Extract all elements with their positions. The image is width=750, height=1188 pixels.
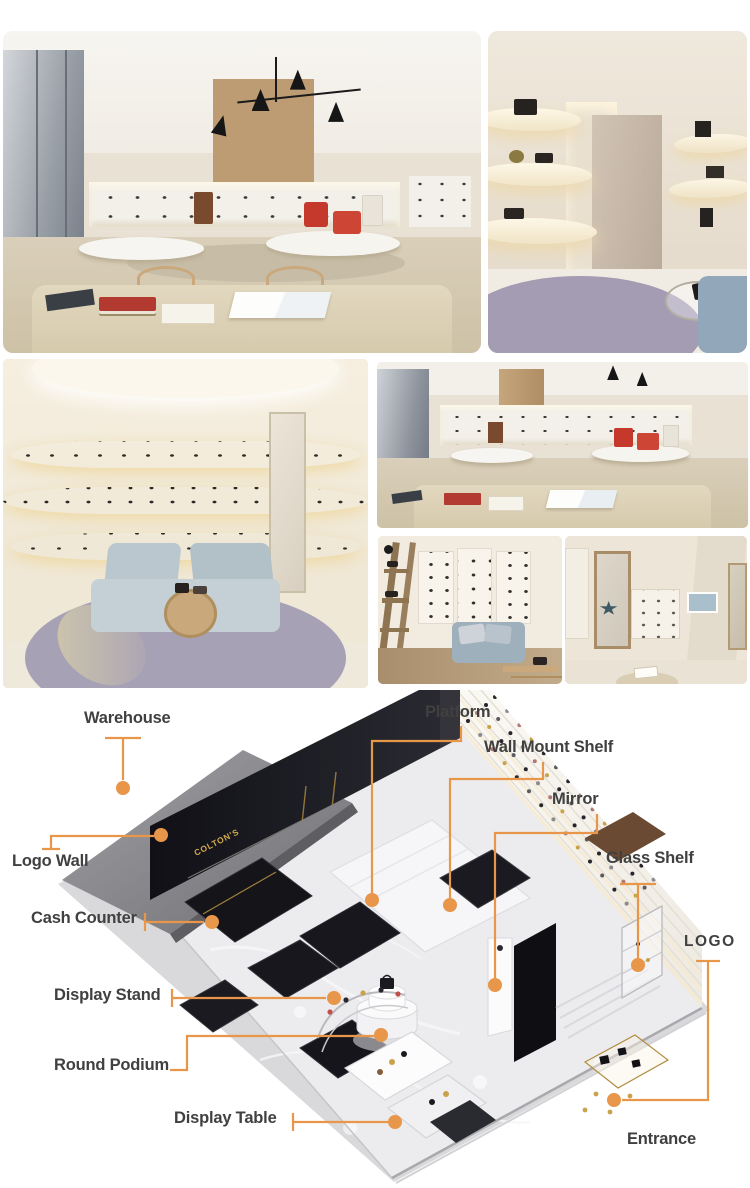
mirror — [269, 412, 306, 594]
product-mark — [496, 717, 500, 721]
product-mark — [560, 809, 564, 813]
photo-shoe-boutique — [488, 31, 747, 353]
product-mark — [643, 886, 647, 890]
red-handbag — [333, 211, 362, 234]
dot-logo — [607, 1093, 621, 1107]
product-mark — [526, 715, 531, 720]
white-book — [488, 496, 523, 511]
product-mark — [625, 902, 629, 906]
dot-glass-shelf — [631, 958, 645, 972]
display-cabinet — [631, 589, 680, 638]
label-entrance: Entrance — [627, 1130, 696, 1149]
shoe — [535, 153, 553, 163]
ladder-shelf — [380, 628, 409, 632]
chandelier-stem — [275, 57, 277, 102]
label-wall-mount-shelf: Wall Mount Shelf — [484, 738, 613, 757]
wood-bench — [503, 666, 558, 672]
red-book — [99, 297, 156, 311]
curved-shelf — [488, 163, 592, 186]
white-book — [161, 303, 216, 324]
label-display-stand: Display Stand — [54, 986, 161, 1005]
product-mark — [597, 852, 601, 856]
dot-logo-wall — [154, 828, 168, 842]
open-magazine — [229, 292, 331, 318]
handbag — [514, 99, 537, 115]
label-logo-wall: Logo Wall — [12, 852, 88, 871]
product-mark — [576, 846, 580, 850]
dot-display-stand — [327, 991, 341, 1005]
product-mark — [502, 690, 507, 691]
dot-platform — [365, 893, 379, 907]
product-mark — [603, 822, 607, 826]
label-warehouse: Warehouse — [84, 709, 171, 728]
product-mark — [505, 709, 509, 713]
center-column — [592, 115, 662, 289]
product-mark — [582, 815, 586, 819]
cushion — [458, 623, 486, 644]
product-mark — [527, 789, 531, 793]
product-mark — [660, 869, 665, 874]
red-handbag — [304, 202, 328, 228]
photo-handbag-store — [3, 31, 481, 353]
label-glass-shelf: Glass Shelf — [606, 849, 694, 868]
product-mark — [524, 767, 528, 771]
label-cash-counter: Cash Counter — [31, 909, 137, 928]
open-magazine — [545, 490, 616, 508]
product-mark — [573, 823, 577, 827]
display-table — [79, 237, 203, 260]
product-mark — [503, 761, 507, 765]
leather-bag — [488, 422, 503, 444]
product-mark — [563, 757, 568, 762]
heel-on-bench — [533, 657, 548, 664]
product-mark — [554, 765, 558, 769]
photo-mirror-corner — [565, 536, 747, 684]
ladder-shelf — [382, 598, 410, 602]
dot-wall-mount-shelf — [443, 898, 457, 912]
label-mirror: Mirror — [552, 790, 598, 809]
wall-lamp — [384, 545, 393, 554]
label-round-podium: Round Podium — [54, 1056, 169, 1075]
cushion — [484, 624, 511, 644]
side-table — [164, 589, 217, 638]
product-mark — [538, 729, 543, 734]
store-layout-render: COLTON'S — [0, 690, 750, 1188]
photo-shoe-wall-lounge — [3, 359, 368, 688]
dot-display-table — [388, 1115, 402, 1129]
tote-bag — [362, 195, 383, 226]
shelf-row — [10, 441, 360, 467]
shoe — [175, 583, 190, 593]
product-mark — [630, 872, 634, 876]
dot-cash-counter — [205, 915, 219, 929]
red-handbag — [637, 433, 659, 450]
shoe — [509, 150, 525, 163]
leather-bag — [194, 192, 213, 224]
boot — [695, 121, 711, 137]
wall-screen — [687, 592, 718, 612]
product-mark — [508, 731, 512, 735]
product-mark — [536, 781, 540, 785]
shoe — [504, 208, 525, 219]
product-mark — [566, 779, 570, 783]
label-display-table: Display Table — [174, 1109, 277, 1128]
framed-mirror — [594, 551, 631, 649]
product-mark — [575, 771, 580, 776]
shelf-row — [10, 533, 360, 559]
label-logo: LOGO — [684, 933, 736, 951]
heel — [700, 208, 713, 227]
dot-round-podium — [374, 1028, 388, 1042]
label-platform: Platform — [425, 703, 490, 722]
photo-handbag-store-wide — [377, 362, 748, 528]
product-mark — [478, 733, 482, 737]
shoe — [385, 591, 398, 597]
product-mark — [493, 695, 497, 699]
ladder-shelf — [384, 569, 410, 573]
tote-bag — [663, 425, 680, 447]
product-mark — [600, 874, 604, 878]
dot-warehouse — [116, 781, 130, 795]
shelf-bay — [418, 551, 453, 624]
photo-wood-shelf-lounge — [378, 536, 562, 684]
shoe — [193, 586, 208, 594]
display-table — [266, 231, 400, 257]
product-mark — [599, 799, 604, 804]
product-mark — [487, 725, 491, 729]
red-handbag — [614, 428, 633, 446]
side-shelf — [565, 548, 589, 639]
shoe — [387, 561, 398, 567]
product-mark — [533, 759, 537, 763]
shoe — [706, 166, 724, 177]
product-mark — [514, 701, 519, 706]
shelf-bay — [457, 548, 492, 624]
wall-shelves — [409, 176, 471, 228]
far-mirror — [728, 563, 747, 650]
product-mark — [517, 723, 521, 727]
red-book — [444, 493, 481, 505]
product-mark — [588, 860, 592, 864]
product-mark — [652, 878, 656, 882]
blue-chair — [698, 276, 747, 353]
product-mark — [545, 773, 549, 777]
product-mark — [539, 803, 543, 807]
product-mark — [612, 888, 616, 892]
dot-mirror — [488, 978, 502, 992]
connector-warehouse — [105, 738, 141, 780]
product-mark — [551, 817, 555, 821]
product-mark — [611, 813, 616, 818]
shelf-row — [3, 487, 368, 513]
shelf-bay — [496, 551, 531, 624]
